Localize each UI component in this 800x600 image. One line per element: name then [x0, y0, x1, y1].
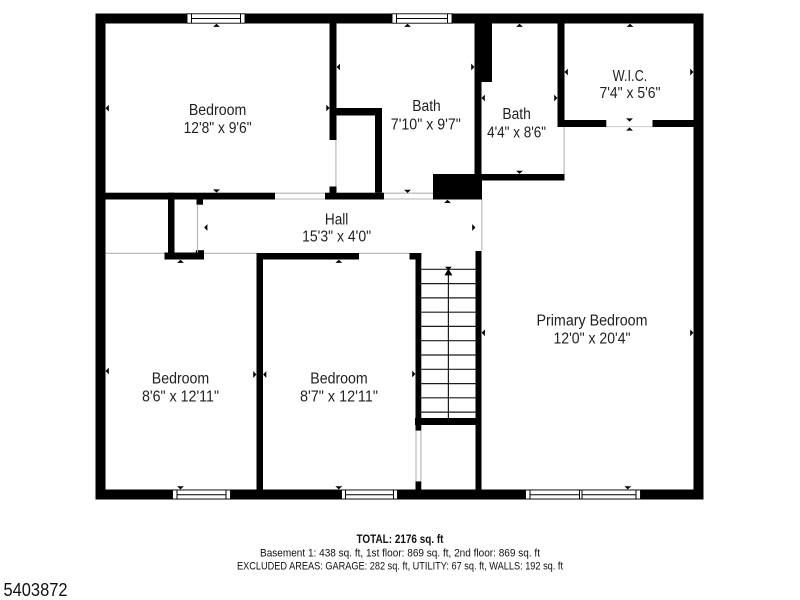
svg-text:Bedroom: Bedroom [152, 371, 210, 388]
svg-text:Bath: Bath [502, 106, 531, 123]
svg-text:Primary Bedroom: Primary Bedroom [537, 313, 648, 330]
svg-text:7'4" x 5'6": 7'4" x 5'6" [600, 85, 661, 102]
svg-text:W.I.C.: W.I.C. [613, 68, 648, 85]
svg-text:12'8" x 9'6": 12'8" x 9'6" [184, 120, 252, 137]
svg-text:Bedroom: Bedroom [189, 102, 247, 119]
svg-text:12'0" x 20'4": 12'0" x 20'4" [554, 331, 631, 348]
svg-text:TOTAL: 2176 sq. ft: TOTAL: 2176 sq. ft [357, 534, 444, 546]
svg-text:Bedroom: Bedroom [310, 371, 368, 388]
svg-text:7'10" x 9'7": 7'10" x 9'7" [391, 116, 461, 133]
svg-text:8'7" x 12'11": 8'7" x 12'11" [300, 389, 378, 406]
svg-text:5403872: 5403872 [4, 579, 68, 600]
svg-text:Basement 1: 438 sq. ft, 1st fl: Basement 1: 438 sq. ft, 1st floor: 869 s… [260, 548, 540, 560]
svg-text:EXCLUDED AREAS: GARAGE: 282 sq: EXCLUDED AREAS: GARAGE: 282 sq. ft, UTIL… [237, 561, 563, 573]
svg-text:Bath: Bath [412, 98, 441, 115]
svg-text:4'4" x 8'6": 4'4" x 8'6" [487, 125, 546, 142]
svg-text:8'6" x 12'11": 8'6" x 12'11" [142, 389, 219, 406]
svg-text:Hall: Hall [325, 211, 349, 228]
svg-text:15'3" x 4'0": 15'3" x 4'0" [302, 229, 371, 246]
